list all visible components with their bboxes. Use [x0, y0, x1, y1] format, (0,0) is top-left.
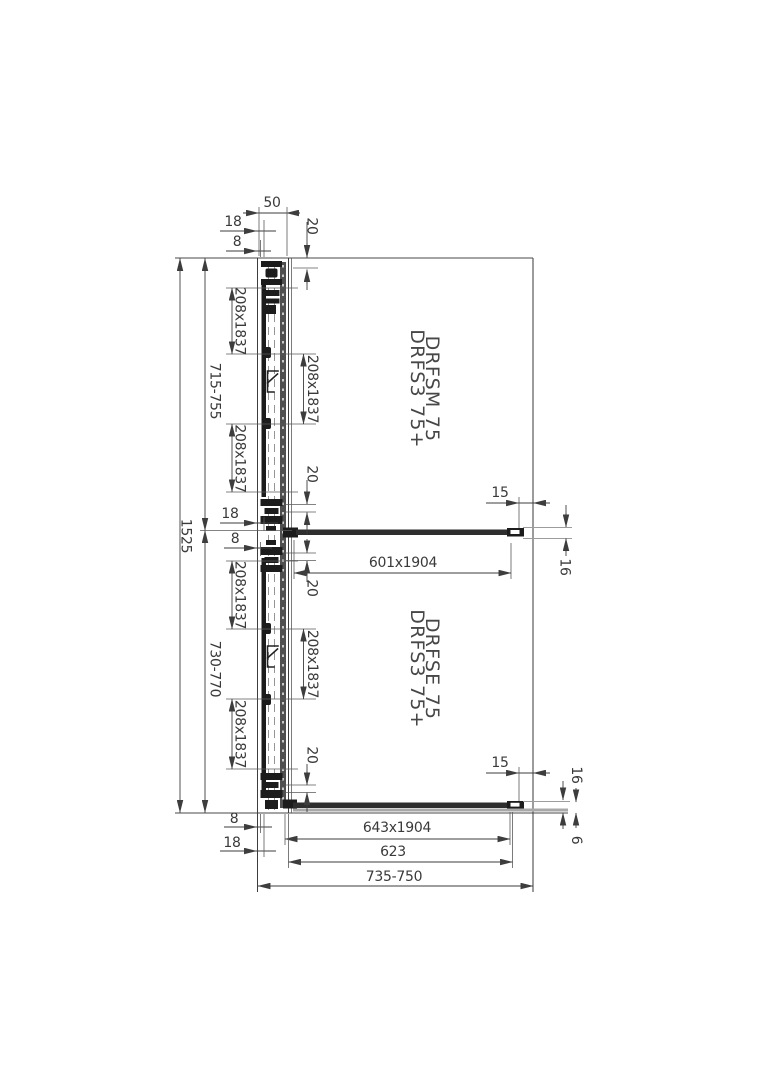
- carriage-bottom: [261, 773, 283, 809]
- product-label-bottom-line2: DRFSE 75: [421, 618, 443, 720]
- product-label-bottom-unit: DRFS3 75+ DRFSE 75: [406, 609, 443, 729]
- dim-offset18-top-label: 18: [224, 214, 241, 230]
- handle-top: [268, 371, 279, 392]
- dim-door-leaf-t1-label: 208x1837: [232, 287, 248, 355]
- dim-gap20-bottom-label: 20: [304, 746, 320, 763]
- dim-door-leaf-b1-label: 208x1837: [232, 561, 248, 629]
- bottom-glass-panel: [283, 800, 570, 811]
- dim-offset8-bottom: 8: [224, 811, 272, 833]
- dim-entry-width: 735-750: [258, 869, 533, 886]
- door-leaf-stack-top: [262, 283, 267, 497]
- technical-drawing: DRFS3 75+ DRFSM 75 DRFS3 75+ DRFSE 75 15…: [0, 0, 764, 1080]
- dim-offset8-middle-label: 8: [231, 531, 240, 547]
- dim-total-height-label: 1525: [178, 519, 194, 553]
- dim-fixing16-middle: 16: [557, 505, 573, 576]
- dim-top-unit-height: 715-755: [205, 259, 223, 531]
- dim-wallgap15-bottom: 15: [486, 755, 550, 801]
- carriage-top-1: [261, 261, 282, 285]
- product-label-top-line2: DRFSM 75: [421, 336, 443, 443]
- dim-gap20-top: 20: [293, 217, 320, 290]
- product-label-top-unit: DRFS3 75+ DRFSM 75: [406, 329, 443, 449]
- dim-glass6-bottom-label: 6: [568, 836, 584, 845]
- dim-offset8-bottom-label: 8: [230, 811, 239, 827]
- dim-total-height: 1525: [178, 259, 194, 813]
- handle-bottom: [268, 646, 279, 667]
- dim-rail-width-label: 50: [263, 195, 280, 211]
- dim-offset18-bottom: 18: [220, 814, 276, 857]
- carriage-middle-lower: [261, 540, 283, 572]
- dim-gap20-below-middle: 20: [285, 539, 320, 597]
- dim-offset18-bottom-label: 18: [223, 835, 240, 851]
- dim-gap20-top-label: 20: [304, 217, 320, 234]
- dim-rail-width: 50: [243, 195, 300, 256]
- dim-bottom-unit-height-label: 730-770: [207, 641, 223, 697]
- dim-wallgap15-middle-label: 15: [491, 485, 508, 501]
- dim-bottom-panel-width-label: 623: [380, 844, 406, 860]
- door-leaf-stack-bottom: [262, 558, 267, 798]
- dim-fixing16-bottom-label: 16: [568, 766, 584, 784]
- middle-glass-panel: [283, 528, 572, 539]
- dim-mid-panel-glass-label: 601x1904: [369, 555, 438, 571]
- dim-door-leaf-t3-label: 208x1837: [232, 424, 248, 492]
- dim-entry-width-label: 735-750: [366, 869, 422, 885]
- dim-gap20-below-middle-label: 20: [304, 579, 320, 596]
- dim-door-leaf-b3-label: 208x1837: [232, 700, 248, 768]
- panel-connector-left: [283, 528, 298, 538]
- technical-drawing-page: DRFS3 75+ DRFSM 75 DRFS3 75+ DRFSE 75 15…: [0, 0, 764, 1080]
- dim-offset18-middle-label: 18: [221, 506, 238, 522]
- dim-bottom-panel-glass-label: 643x1904: [363, 820, 432, 836]
- dim-fixing16-middle-label: 16: [557, 558, 573, 576]
- dim-door-leaf-b2-label: 208x1837: [304, 630, 320, 698]
- dim-top-unit-height-label: 715-755: [207, 363, 223, 419]
- dim-glass6-bottom: 6: [568, 813, 584, 845]
- dim-wallgap15-middle: 15: [486, 485, 550, 528]
- dim-bottom-panel-glass: 643x1904: [285, 812, 510, 845]
- dim-gap20-above-middle-label: 20: [304, 465, 320, 482]
- dim-gap20-above-middle: 20: [285, 465, 320, 534]
- dim-door-leaf-t2: 208x1837: [226, 354, 320, 424]
- dim-offset8-top-label: 8: [233, 234, 242, 250]
- dim-mid-panel-glass: 601x1904: [294, 540, 511, 579]
- dim-door-leaf-b2: 208x1837: [226, 629, 320, 699]
- dim-door-leaf-t2-label: 208x1837: [304, 355, 320, 423]
- dim-wallgap15-bottom-label: 15: [491, 755, 508, 771]
- dim-fixing16-bottom: 16: [563, 766, 584, 829]
- dim-door-leaf-t1: 208x1837: [226, 287, 316, 355]
